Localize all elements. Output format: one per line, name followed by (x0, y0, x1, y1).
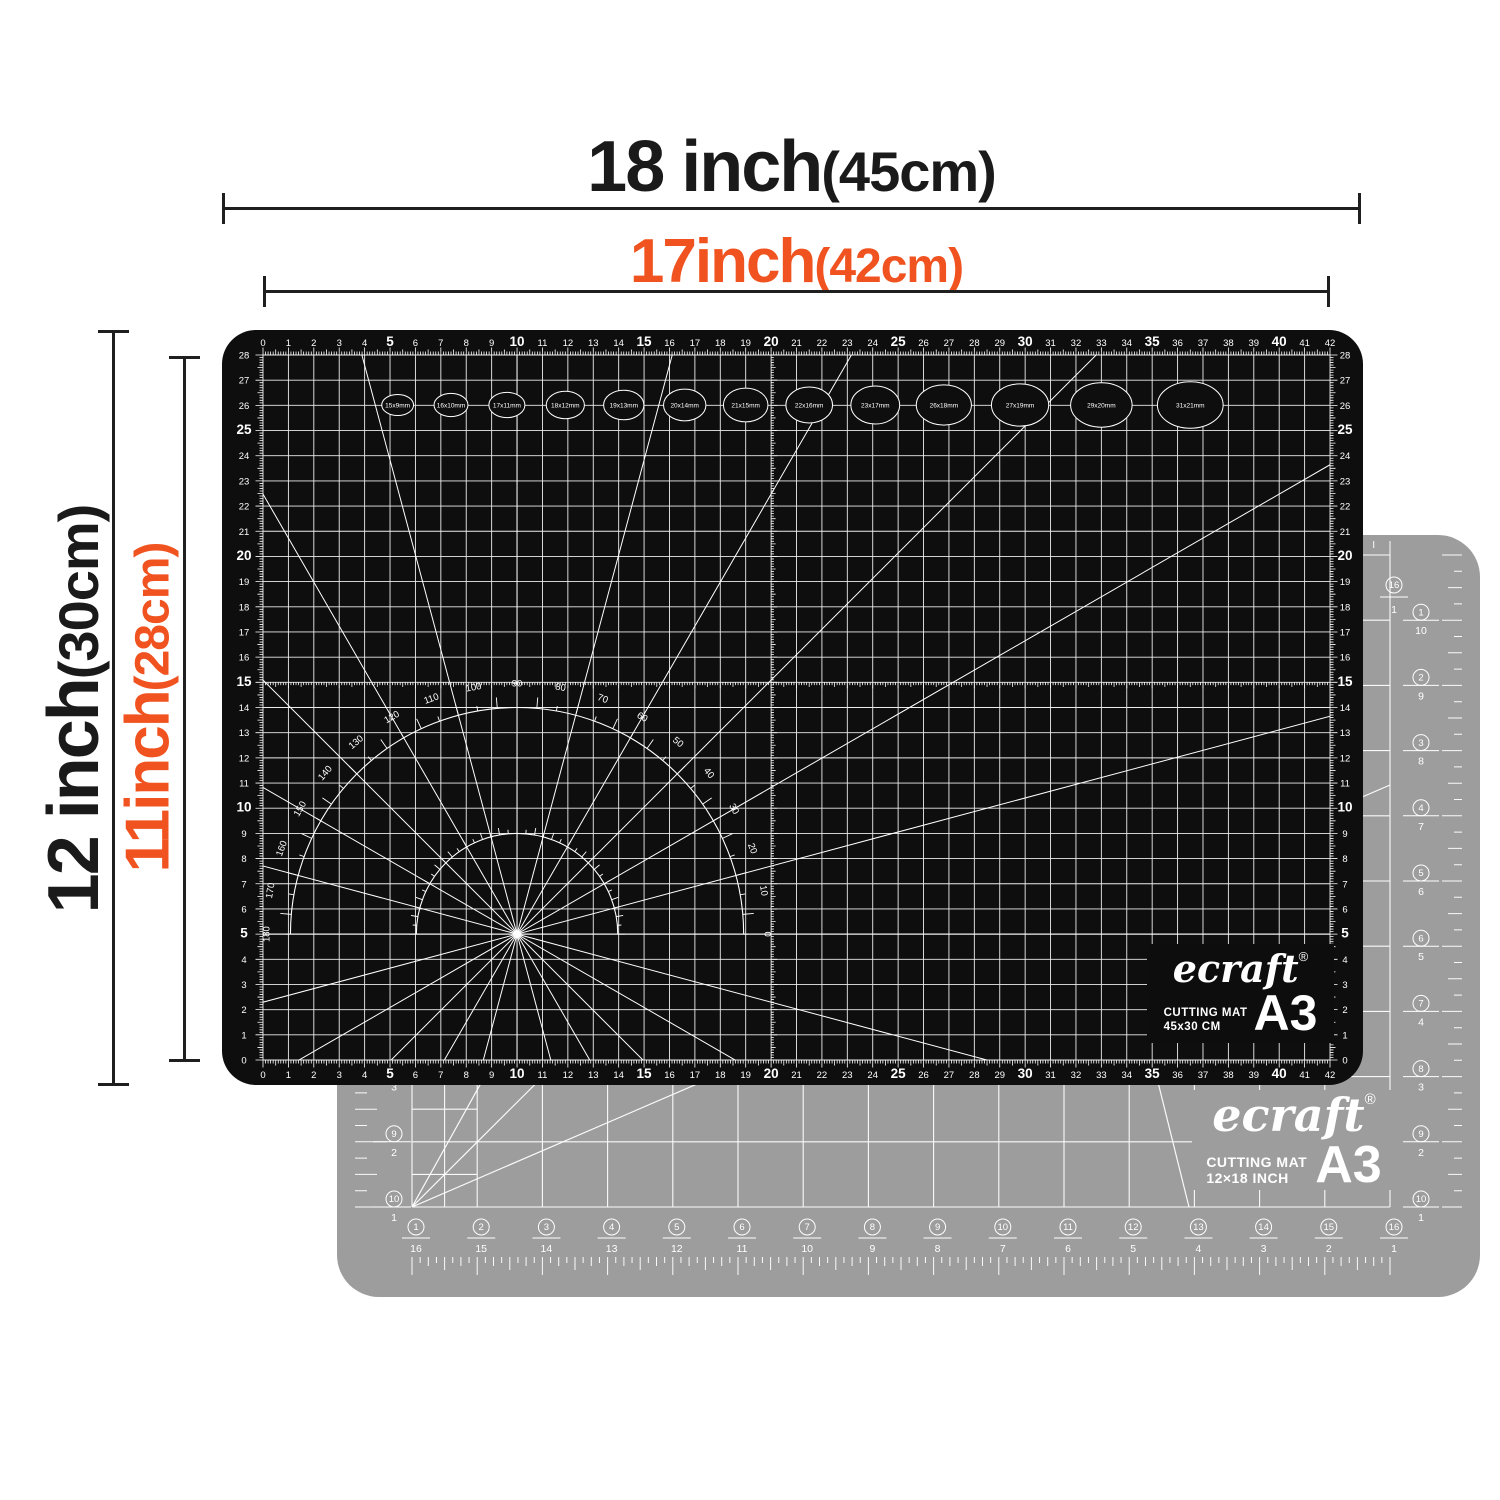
svg-text:19: 19 (740, 338, 751, 349)
svg-text:9: 9 (391, 1129, 396, 1140)
svg-text:40: 40 (1272, 1066, 1287, 1081)
svg-text:32: 32 (1071, 1070, 1082, 1081)
svg-text:14: 14 (1258, 1222, 1269, 1233)
svg-text:1: 1 (1418, 607, 1423, 618)
svg-text:18: 18 (715, 1070, 726, 1081)
svg-text:9: 9 (489, 1070, 494, 1081)
svg-text:29: 29 (994, 1070, 1005, 1081)
svg-text:24: 24 (239, 451, 250, 462)
dimension-label-left-outer: 12 inch(30cm) (33, 259, 115, 1159)
dimension-text: 18 inch (587, 127, 821, 207)
svg-text:15: 15 (637, 1066, 653, 1081)
svg-text:20: 20 (764, 334, 779, 349)
svg-text:10: 10 (998, 1222, 1009, 1233)
svg-text:17: 17 (690, 1070, 701, 1081)
svg-text:19x13mm: 19x13mm (609, 403, 638, 410)
svg-text:10: 10 (1337, 800, 1352, 815)
svg-text:23: 23 (842, 338, 853, 349)
svg-text:33: 33 (1096, 338, 1107, 349)
svg-text:3: 3 (1418, 738, 1423, 749)
svg-text:13: 13 (1193, 1222, 1204, 1233)
svg-text:5: 5 (1130, 1243, 1136, 1255)
svg-text:16: 16 (1340, 653, 1351, 664)
svg-text:25: 25 (236, 422, 252, 437)
svg-text:7: 7 (1418, 821, 1424, 833)
svg-text:40: 40 (1272, 334, 1287, 349)
svg-text:6: 6 (1065, 1243, 1071, 1255)
dimension-paren: (42cm) (814, 240, 963, 293)
svg-text:28: 28 (239, 351, 250, 362)
brand-name: ecraft (1212, 1090, 1364, 1142)
svg-text:14: 14 (1340, 703, 1351, 714)
svg-text:180: 180 (261, 926, 272, 942)
svg-text:12: 12 (1340, 753, 1351, 764)
svg-text:6: 6 (1342, 904, 1347, 915)
svg-text:8: 8 (935, 1243, 941, 1255)
svg-text:38: 38 (1223, 1070, 1234, 1081)
svg-text:8: 8 (464, 1070, 469, 1081)
svg-text:23: 23 (1340, 476, 1351, 487)
svg-text:28: 28 (969, 1070, 980, 1081)
svg-text:11: 11 (239, 779, 249, 790)
svg-text:7: 7 (1418, 999, 1423, 1010)
logo-caption: CUTTING MAT 45x30 CM (1164, 1007, 1248, 1035)
svg-text:34: 34 (1121, 338, 1132, 349)
svg-text:35: 35 (1145, 334, 1161, 349)
svg-text:12: 12 (563, 1070, 574, 1081)
svg-text:10: 10 (1415, 625, 1427, 637)
svg-text:1: 1 (286, 1070, 291, 1081)
svg-text:21: 21 (791, 338, 802, 349)
dimension-label-top-outer: 18 inch(45cm) (222, 126, 1361, 208)
dimension-cap (1358, 193, 1361, 224)
svg-text:30: 30 (1018, 334, 1033, 349)
gray-mat-logo: ecraft® CUTTING MAT 12×18 INCH A3 (1192, 1090, 1396, 1190)
mat-size-label: A3 (1315, 1143, 1381, 1187)
svg-text:21x15mm: 21x15mm (731, 403, 760, 410)
svg-text:10: 10 (757, 885, 770, 897)
svg-text:18: 18 (239, 602, 250, 613)
svg-text:10: 10 (1416, 1194, 1427, 1205)
cutting-mat-dimension-diagram: 18 inch(45cm) 17inch(42cm) 12 inch(30cm)… (0, 0, 1500, 1500)
svg-text:3: 3 (337, 338, 342, 349)
svg-text:8: 8 (870, 1222, 875, 1233)
svg-text:42: 42 (1325, 1070, 1336, 1081)
svg-text:14: 14 (239, 703, 250, 714)
svg-text:5: 5 (1341, 926, 1349, 941)
svg-text:37: 37 (1198, 338, 1209, 349)
svg-text:3: 3 (1261, 1243, 1267, 1255)
svg-text:9: 9 (1418, 1129, 1423, 1140)
svg-text:27: 27 (944, 1070, 955, 1081)
svg-text:5: 5 (674, 1222, 679, 1233)
svg-text:11: 11 (538, 338, 548, 349)
svg-text:6: 6 (1418, 886, 1424, 898)
dimension-text: 11inch (114, 691, 183, 872)
dimension-cap (263, 276, 266, 307)
svg-text:7: 7 (805, 1222, 810, 1233)
svg-text:9: 9 (935, 1222, 940, 1233)
svg-text:3: 3 (337, 1070, 342, 1081)
svg-text:26: 26 (1340, 401, 1351, 412)
svg-text:4: 4 (362, 1070, 367, 1081)
svg-text:0: 0 (260, 338, 265, 349)
svg-text:30: 30 (1018, 1066, 1033, 1081)
svg-text:12: 12 (1128, 1222, 1139, 1233)
dimension-line-top-outer (222, 207, 1361, 210)
svg-text:7: 7 (438, 338, 443, 349)
svg-text:2: 2 (1342, 1005, 1347, 1016)
svg-text:12: 12 (239, 753, 250, 764)
svg-text:9: 9 (241, 829, 246, 840)
svg-text:23: 23 (842, 1070, 853, 1081)
svg-text:1: 1 (391, 1212, 397, 1224)
svg-text:2: 2 (1418, 1147, 1424, 1159)
dimension-paren: (30cm) (47, 505, 110, 680)
svg-text:16: 16 (1389, 580, 1400, 591)
svg-text:7: 7 (1342, 879, 1347, 890)
svg-text:4: 4 (1195, 1243, 1201, 1255)
svg-text:18: 18 (1340, 602, 1351, 613)
svg-text:7: 7 (241, 879, 246, 890)
svg-text:4: 4 (609, 1222, 614, 1233)
svg-text:27: 27 (239, 376, 250, 387)
svg-text:16: 16 (239, 653, 250, 664)
svg-text:9: 9 (869, 1243, 875, 1255)
svg-text:16x10mm: 16x10mm (437, 403, 466, 410)
svg-text:9: 9 (1418, 690, 1424, 702)
svg-text:2: 2 (479, 1222, 484, 1233)
svg-text:18: 18 (715, 338, 726, 349)
dimension-line-top-inner (263, 290, 1330, 293)
logo-caption: CUTTING MAT 12×18 INCH (1206, 1154, 1307, 1188)
svg-text:33: 33 (1096, 1070, 1107, 1081)
logo-caption-line2: 12×18 INCH (1206, 1170, 1307, 1187)
svg-text:0: 0 (1342, 1056, 1347, 1067)
svg-text:6: 6 (1418, 933, 1423, 944)
svg-text:4: 4 (1418, 803, 1423, 814)
dimension-paren: (45cm) (821, 140, 996, 203)
svg-text:5: 5 (1418, 951, 1424, 963)
svg-text:10: 10 (236, 800, 251, 815)
dimension-text: 17inch (630, 227, 814, 296)
svg-text:0: 0 (260, 1070, 265, 1081)
svg-text:1: 1 (1391, 1243, 1397, 1255)
svg-text:23x17mm: 23x17mm (861, 403, 890, 410)
svg-text:4: 4 (362, 338, 367, 349)
svg-text:15: 15 (475, 1243, 487, 1255)
svg-text:34: 34 (1121, 1070, 1132, 1081)
svg-text:18x12mm: 18x12mm (551, 403, 580, 410)
svg-text:13: 13 (239, 728, 250, 739)
svg-text:37: 37 (1198, 1070, 1209, 1081)
svg-text:80: 80 (554, 681, 566, 694)
svg-text:17: 17 (239, 627, 250, 638)
svg-text:2: 2 (1326, 1243, 1332, 1255)
svg-text:31x21mm: 31x21mm (1176, 403, 1205, 410)
svg-text:22: 22 (1340, 502, 1351, 513)
mat-size-label: A3 (1253, 992, 1317, 1035)
svg-text:11: 11 (538, 1070, 548, 1081)
svg-text:39: 39 (1249, 338, 1260, 349)
svg-text:14: 14 (613, 1070, 624, 1081)
svg-text:11: 11 (737, 1243, 748, 1255)
svg-text:10: 10 (389, 1194, 400, 1205)
svg-text:35: 35 (1145, 1066, 1161, 1081)
logo-bottom-row: CUTTING MAT 12×18 INCH A3 (1192, 1143, 1396, 1187)
svg-text:22: 22 (817, 338, 828, 349)
svg-text:1: 1 (241, 1030, 246, 1041)
svg-text:27: 27 (1340, 376, 1351, 387)
svg-text:27: 27 (944, 338, 955, 349)
svg-text:26: 26 (918, 338, 929, 349)
svg-text:38: 38 (1223, 338, 1234, 349)
svg-text:10: 10 (510, 1066, 525, 1081)
svg-text:32: 32 (1071, 338, 1082, 349)
svg-text:21: 21 (791, 1070, 802, 1081)
svg-text:11: 11 (1063, 1222, 1073, 1233)
dimension-cap (1327, 276, 1330, 307)
svg-text:31: 31 (1045, 338, 1056, 349)
svg-text:19: 19 (239, 577, 250, 588)
svg-text:21: 21 (239, 527, 250, 538)
svg-text:15: 15 (637, 334, 653, 349)
brand-row: ecraft® (1147, 950, 1334, 988)
registered-mark: ® (1365, 1091, 1376, 1108)
svg-text:22x16mm: 22x16mm (795, 403, 824, 410)
logo-caption-line1: CUTTING MAT (1164, 1007, 1248, 1021)
svg-text:25: 25 (891, 334, 907, 349)
black-mat-logo: ecraft® CUTTING MAT 45x30 CM A3 (1147, 944, 1334, 1043)
dimension-text: 12 inch (34, 679, 114, 913)
svg-text:31: 31 (1045, 1070, 1056, 1081)
svg-text:90: 90 (512, 679, 523, 690)
svg-text:26: 26 (918, 1070, 929, 1081)
svg-text:3: 3 (1342, 980, 1347, 991)
svg-text:20: 20 (236, 548, 251, 563)
svg-text:24: 24 (1340, 451, 1351, 462)
svg-text:1: 1 (1342, 1030, 1347, 1041)
svg-text:17x11mm: 17x11mm (493, 403, 521, 410)
logo-caption-line2: 45x30 CM (1164, 1021, 1248, 1035)
svg-text:28: 28 (1340, 351, 1351, 362)
dimension-paren: (28cm) (127, 543, 180, 692)
svg-text:15: 15 (236, 674, 252, 689)
svg-text:26: 26 (239, 401, 250, 412)
registered-mark: ® (1299, 949, 1309, 964)
svg-text:12: 12 (563, 338, 574, 349)
svg-text:3: 3 (544, 1222, 549, 1233)
svg-text:25: 25 (891, 1066, 907, 1081)
svg-text:41: 41 (1299, 338, 1310, 349)
svg-text:20: 20 (764, 1066, 779, 1081)
svg-text:14: 14 (613, 338, 624, 349)
svg-text:22: 22 (239, 502, 250, 513)
svg-text:11: 11 (1340, 779, 1350, 790)
svg-text:1: 1 (1391, 604, 1397, 616)
svg-text:36: 36 (1172, 338, 1183, 349)
svg-text:7: 7 (438, 1070, 443, 1081)
svg-text:2: 2 (311, 338, 316, 349)
svg-text:16: 16 (664, 338, 675, 349)
svg-text:2: 2 (311, 1070, 316, 1081)
brand-row: ecraft® (1192, 1092, 1396, 1138)
svg-text:0: 0 (241, 1056, 246, 1067)
svg-text:29x20mm: 29x20mm (1087, 403, 1116, 410)
svg-text:19: 19 (740, 1070, 751, 1081)
svg-text:4: 4 (1342, 955, 1347, 966)
svg-text:29: 29 (994, 338, 1005, 349)
svg-text:22: 22 (817, 1070, 828, 1081)
svg-text:42: 42 (1325, 338, 1336, 349)
svg-text:28: 28 (969, 338, 980, 349)
svg-text:5: 5 (386, 334, 394, 349)
svg-text:2: 2 (391, 1147, 397, 1159)
svg-text:24: 24 (867, 338, 878, 349)
svg-text:23: 23 (239, 476, 250, 487)
svg-text:5: 5 (386, 1066, 394, 1081)
svg-text:5: 5 (240, 926, 248, 941)
svg-text:27x19mm: 27x19mm (1006, 403, 1035, 410)
svg-text:20x14mm: 20x14mm (670, 403, 699, 410)
svg-text:15: 15 (1324, 1222, 1335, 1233)
svg-text:8: 8 (241, 854, 246, 865)
svg-text:4: 4 (1418, 1016, 1424, 1028)
svg-text:17: 17 (1340, 627, 1351, 638)
svg-text:13: 13 (588, 338, 599, 349)
svg-text:9: 9 (1342, 829, 1347, 840)
svg-text:8: 8 (1342, 854, 1347, 865)
svg-text:12: 12 (671, 1243, 683, 1255)
svg-text:1: 1 (286, 338, 291, 349)
svg-text:14: 14 (541, 1243, 553, 1255)
svg-text:1: 1 (1418, 1212, 1424, 1224)
svg-text:16: 16 (1389, 1222, 1400, 1233)
svg-text:26x18mm: 26x18mm (930, 403, 959, 410)
svg-text:13: 13 (588, 1070, 599, 1081)
svg-text:36: 36 (1172, 1070, 1183, 1081)
svg-text:13: 13 (1340, 728, 1351, 739)
dimension-cap (169, 356, 200, 359)
svg-text:10: 10 (510, 334, 525, 349)
svg-text:16: 16 (664, 1070, 675, 1081)
svg-text:7: 7 (1000, 1243, 1006, 1255)
svg-text:21: 21 (1340, 527, 1351, 538)
svg-text:15: 15 (1337, 674, 1353, 689)
svg-text:9: 9 (489, 338, 494, 349)
svg-text:6: 6 (413, 1070, 418, 1081)
dimension-label-top-inner: 17inch(42cm) (263, 226, 1330, 297)
svg-text:8: 8 (464, 338, 469, 349)
svg-text:15x9mm: 15x9mm (385, 403, 410, 410)
svg-text:6: 6 (241, 904, 246, 915)
svg-text:3: 3 (1418, 1082, 1424, 1094)
svg-text:8: 8 (1418, 1064, 1423, 1075)
dimension-line-left-inner (183, 356, 186, 1062)
logo-caption-line1: CUTTING MAT (1206, 1154, 1307, 1171)
svg-text:16: 16 (410, 1243, 422, 1255)
svg-text:2: 2 (241, 1005, 246, 1016)
svg-text:25: 25 (1337, 422, 1353, 437)
svg-text:17: 17 (690, 338, 701, 349)
svg-text:1: 1 (413, 1222, 418, 1233)
svg-text:6: 6 (413, 338, 418, 349)
dimension-cap (169, 1059, 200, 1062)
logo-bottom-row: CUTTING MAT 45x30 CM A3 (1147, 992, 1334, 1035)
svg-text:4: 4 (241, 955, 246, 966)
svg-text:8: 8 (1418, 756, 1424, 768)
svg-text:10: 10 (801, 1243, 813, 1255)
svg-text:20: 20 (1337, 548, 1352, 563)
svg-text:41: 41 (1299, 1070, 1310, 1081)
svg-text:24: 24 (867, 1070, 878, 1081)
svg-text:5: 5 (1418, 868, 1423, 879)
svg-text:6: 6 (739, 1222, 744, 1233)
svg-text:2: 2 (1418, 673, 1423, 684)
dimension-cap (222, 193, 225, 224)
dimension-label-left-inner: 11inch(28cm) (113, 258, 184, 1158)
svg-text:0: 0 (762, 931, 773, 936)
svg-text:13: 13 (606, 1243, 618, 1255)
svg-text:3: 3 (241, 980, 246, 991)
svg-text:19: 19 (1340, 577, 1351, 588)
svg-text:39: 39 (1249, 1070, 1260, 1081)
